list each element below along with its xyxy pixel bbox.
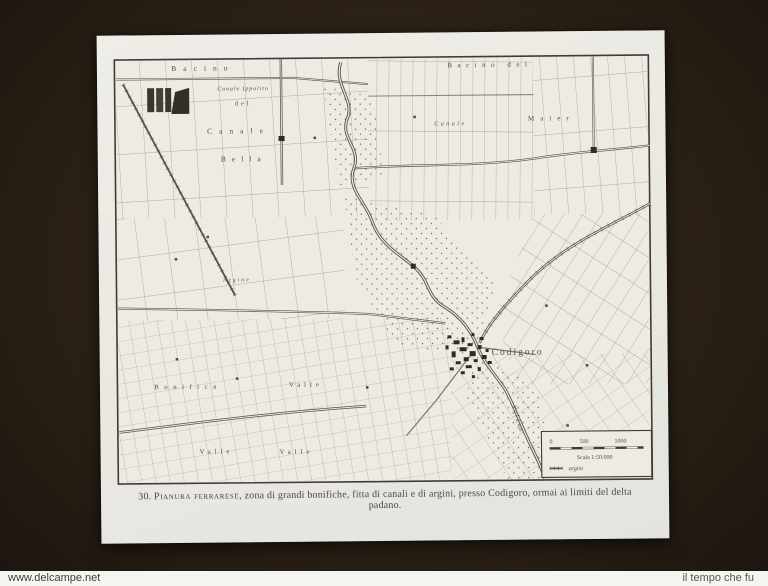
scanned-print: Bacino del Canale Ippolito Canale Bella … xyxy=(97,30,670,543)
map-label-valle-mid: Valle xyxy=(289,382,323,389)
legend-tick-0: 0 xyxy=(549,439,552,445)
map-label-bacino: Bacino xyxy=(171,63,234,73)
building-structure xyxy=(147,88,189,114)
map-label-bella: Bella xyxy=(221,154,267,163)
legend-tick-1000: 1000 xyxy=(614,439,626,445)
map-engraving: Bacino del Canale Ippolito Canale Bella … xyxy=(113,53,654,485)
map-label-canale-ippolito: Canale Ippolito xyxy=(217,86,269,92)
watermark-delcampe: www.delcampe.net xyxy=(8,571,100,586)
map-label-canale-left: Canale xyxy=(207,126,270,136)
watermark-strip: www.delcampe.net il tempo che fu xyxy=(0,571,768,586)
photo-background: Bacino del Canale Ippolito Canale Bella … xyxy=(0,0,768,586)
scale-bar xyxy=(550,448,644,449)
map-label-argine: Argine xyxy=(222,277,251,283)
map-label-valle-2: Valle xyxy=(280,449,314,456)
map-label-valle-1: Valle xyxy=(200,448,234,455)
legend-scale-text: Scala 1:50.000 xyxy=(577,455,613,461)
legend-tick-500: 500 xyxy=(579,439,588,445)
map-label-bacino-del: Bacino del xyxy=(447,61,532,70)
map-label-del: del xyxy=(235,100,252,107)
map-label-maier: Maier xyxy=(528,114,575,122)
map-label-bonifica: Bonifica xyxy=(154,384,221,392)
print-caption: 30. Pianura ferrarese, zona di grandi bo… xyxy=(135,487,635,514)
caption-title: Pianura ferrarese xyxy=(154,490,239,502)
watermark-il-tempo-che-fu: il tempo che fu xyxy=(682,571,754,586)
map-label-canale-right: Canale xyxy=(434,121,466,127)
legend-argini-label: argini xyxy=(569,466,584,472)
legend-box: 0 500 1000 Scala 1:50.000 xyxy=(541,430,651,477)
map-svg: Bacino del Canale Ippolito Canale Bella … xyxy=(113,53,654,485)
caption-text: , zona di grandi bonifiche, fitta di can… xyxy=(239,487,632,512)
map-label-codigoro: Codigoro xyxy=(492,347,544,357)
caption-number: 30. xyxy=(138,491,151,502)
